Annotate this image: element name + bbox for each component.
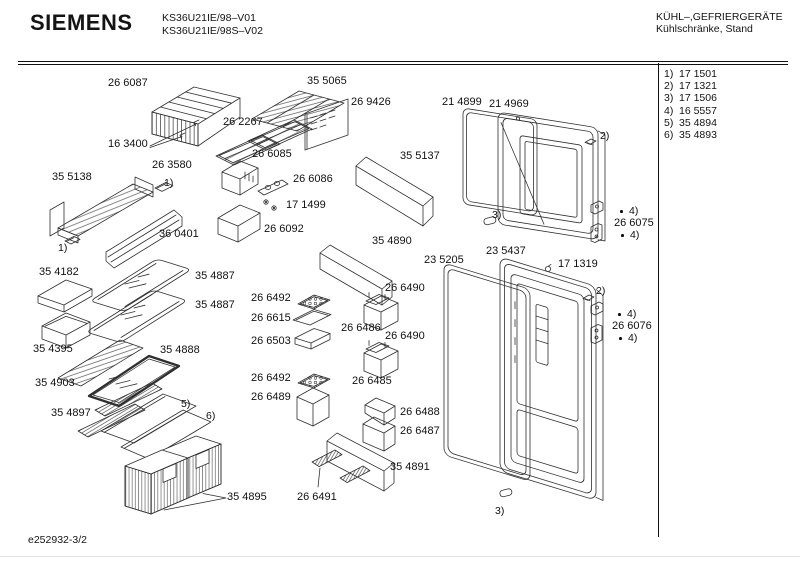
drawing-drawers-35-4895	[125, 436, 226, 514]
drawing-part-17-1319	[545, 264, 551, 271]
drawing-screws-17-1499	[264, 200, 276, 210]
part-label: 26 6087	[108, 77, 148, 89]
part-label: 26 9426	[351, 96, 391, 108]
part-label: 26 6490	[385, 330, 425, 342]
part-label: 26 6492	[251, 292, 291, 304]
drawing-plate-26-6086	[258, 180, 288, 195]
drawing-glass-shelf-35-4887-b	[89, 291, 185, 342]
part-label: 35 4891	[390, 461, 430, 473]
drawing-gasket-21-4899	[463, 108, 537, 216]
drawing-shelf-35-5138	[50, 177, 153, 243]
drawing-bin-35-5137	[356, 157, 433, 226]
ref-marker: 4)	[629, 205, 638, 217]
part-label: 21 4899	[442, 96, 482, 108]
drawing-egg-tray-26-6492-b	[298, 374, 330, 388]
parts-diagram-page: SIEMENS KS36U21IE/98–V01 KS36U21IE/98S–V…	[0, 0, 800, 566]
drawing-tray-35-4182	[38, 280, 92, 312]
part-label: 23 5437	[486, 245, 526, 257]
drawing-butter-dish-26-6503	[295, 329, 330, 350]
part-label: 26 6488	[400, 406, 440, 418]
part-label: 26 6490	[385, 282, 425, 294]
drawing-freezer-door-21-4969	[498, 112, 605, 241]
part-label: 26 6491	[297, 491, 337, 503]
ref-marker: 4)	[630, 229, 639, 241]
part-label: 35 4887	[195, 299, 235, 311]
part-label: 26 2267	[223, 116, 263, 128]
ref-marker: 6)	[206, 410, 215, 422]
part-label: 26 6503	[251, 335, 291, 347]
part-label: 35 4395	[33, 343, 73, 355]
drawing-fridge-door-23-5437	[500, 257, 603, 502]
part-label: 26 6092	[264, 223, 304, 235]
part-label: 26 6486	[341, 322, 381, 334]
part-label: 21 4969	[489, 98, 529, 110]
part-label: 26 6086	[293, 173, 333, 185]
drawing-hinge-26-6076	[591, 302, 603, 344]
ref-marker: 4)	[628, 332, 637, 344]
part-label: 26 3580	[152, 159, 192, 171]
part-label: 17 1319	[558, 258, 598, 270]
bullet-dot	[621, 234, 624, 237]
part-label: 35 5137	[400, 150, 440, 162]
part-label: 17 1499	[286, 199, 326, 211]
drawing-box-26-6092	[218, 205, 260, 242]
bullet-dot	[618, 313, 621, 316]
ref-marker: 2)	[596, 285, 605, 297]
part-label: 26 6085	[252, 148, 292, 160]
part-label: 26 6485	[352, 375, 392, 387]
drawing-lid-26-6615	[293, 310, 331, 326]
drawing-box-26-6489	[297, 388, 329, 426]
part-label: 35 4888	[160, 344, 200, 356]
part-label: 35 4895	[227, 491, 267, 503]
ref-marker: 3)	[492, 209, 501, 221]
ref-marker: 1)	[164, 177, 173, 189]
drawing-cap-2-bottom	[583, 295, 594, 301]
part-label: 35 5065	[307, 75, 347, 87]
part-label: 26 6615	[251, 312, 291, 324]
part-label: 23 5205	[424, 254, 464, 266]
part-label: 35 4890	[372, 235, 412, 247]
part-label: 26 6075	[614, 217, 654, 229]
part-label: 35 4887	[195, 270, 235, 282]
part-label: 35 5138	[52, 171, 92, 183]
bullet-dot	[619, 337, 622, 340]
drawing-box-26-6085	[222, 161, 258, 195]
drawing-egg-tray-26-6492-a	[298, 295, 330, 309]
part-label: 26 6489	[251, 391, 291, 403]
ref-marker: 2)	[600, 130, 609, 142]
part-label: 35 4182	[39, 266, 79, 278]
drawing-cap-2-top	[585, 139, 596, 145]
part-label: 36 0401	[159, 228, 199, 240]
part-label: 26 6487	[400, 425, 440, 437]
ref-marker: 4)	[627, 308, 636, 320]
ref-marker: 5)	[181, 398, 190, 410]
part-label: 35 4897	[51, 407, 91, 419]
part-label: 26 6076	[612, 320, 652, 332]
drawing-lidbox-26-6485	[364, 341, 398, 379]
drawing-glass-shelf-35-4887-a	[93, 260, 189, 311]
part-label: 26 6492	[251, 372, 291, 384]
part-label: 35 4903	[35, 377, 75, 389]
drawing-bin-26-6488	[365, 398, 395, 425]
drawing-cap-3-bottom	[499, 488, 512, 497]
ref-marker: 1)	[58, 242, 67, 254]
document-number: e252932-3/2	[28, 534, 87, 546]
part-label: 16 3400	[108, 138, 148, 150]
ref-marker: 3)	[495, 505, 504, 517]
bullet-dot	[620, 210, 623, 213]
